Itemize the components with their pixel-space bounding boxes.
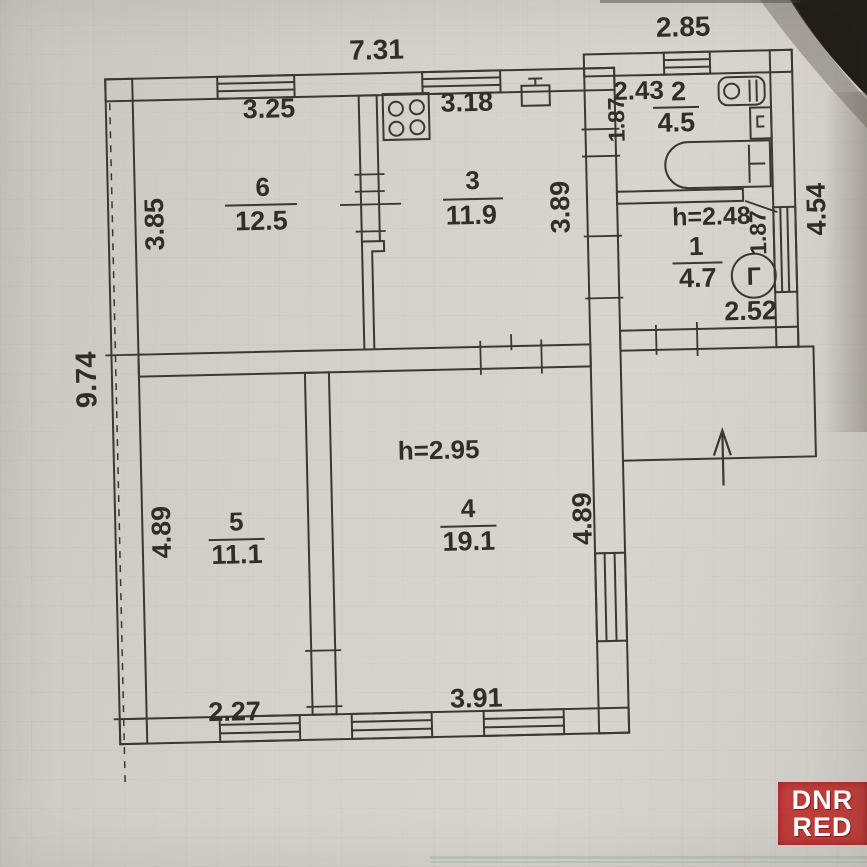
room-6-area: 12.5: [235, 205, 288, 236]
dimension-room6-top: 3.25: [242, 93, 295, 124]
page-curl-shadow: [824, 92, 867, 432]
wall-ticks: [101, 127, 706, 719]
room-5-number: 5: [229, 506, 244, 536]
bathtub-icon: [665, 140, 771, 188]
page-edge-bottom-tint: [430, 856, 867, 859]
window: [773, 207, 797, 292]
room-3-area: 11.9: [445, 200, 497, 231]
dimension-annex-top: 2.85: [656, 11, 711, 43]
dimension-overall-top: 7.31: [349, 34, 404, 66]
dimension-extension-line: [110, 103, 126, 789]
window: [352, 712, 433, 739]
gas-meter-label: Г: [746, 263, 761, 291]
dimension-kitchen-right: 3.89: [545, 180, 576, 233]
partition-6-3-upper: [359, 95, 380, 241]
room-1-ceiling-height: h=2.48: [672, 202, 751, 232]
window: [484, 709, 565, 736]
window: [595, 553, 627, 642]
dimension-room3-top: 3.18: [440, 87, 493, 118]
watermark-line2: RED: [792, 814, 852, 841]
dimension-room5-bottom: 2.27: [208, 696, 261, 727]
stove-icon: [383, 93, 430, 140]
dimension-overall-left: 9.74: [70, 351, 103, 408]
room-4-ceiling-height: h=2.95: [398, 434, 480, 466]
wall-annex-bottom: [620, 327, 798, 351]
dimension-room4-bottom: 3.91: [450, 682, 503, 713]
interior-walls: [133, 86, 789, 718]
watermark-line1: DNR: [792, 787, 854, 814]
dimension-room4-right: 4.89: [567, 492, 598, 545]
scanned-floor-plan-photo: Г 7.31 2.85 3.25 3.18 2.43 2.27 3.91 2.5…: [0, 0, 867, 867]
dnr-red-watermark: DNR RED: [778, 782, 867, 845]
room-labels: 6 12.5 3 11.9 2 4.5 h=2.48 1 4.7 h=2.95 …: [198, 75, 758, 570]
dimension-room2-left: 1.87: [603, 97, 630, 142]
washbasin-icon: [718, 76, 765, 105]
room-1-number: 1: [689, 231, 704, 261]
scan-artifacts: [430, 0, 867, 863]
room-4-area: 19.1: [442, 526, 495, 557]
dimension-room5-left: 4.89: [146, 506, 177, 559]
room-3-number: 3: [465, 165, 480, 195]
window: [664, 52, 710, 75]
room-2-area: 4.5: [657, 107, 695, 138]
page-edge-bottom-tint2: [430, 861, 867, 863]
boiler-icon: [750, 107, 772, 138]
room-4-number: 4: [460, 493, 476, 523]
partition-5-4: [305, 372, 337, 714]
dimension-room6-left: 3.85: [139, 198, 170, 251]
partition-6-3-lower: [362, 241, 386, 349]
room-6-number: 6: [255, 172, 270, 202]
windows: [205, 50, 807, 742]
room-5-area: 11.1: [211, 539, 263, 570]
floor-plan-svg: Г 7.31 2.85 3.25 3.18 2.43 2.27 3.91 2.5…: [0, 0, 867, 867]
dimension-room1-bottom: 2.52: [724, 295, 777, 326]
room-2-number: 2: [671, 76, 687, 106]
exterior-walls: [105, 50, 807, 744]
page-edge-top: [600, 0, 800, 3]
room-1-area: 4.7: [679, 263, 717, 294]
